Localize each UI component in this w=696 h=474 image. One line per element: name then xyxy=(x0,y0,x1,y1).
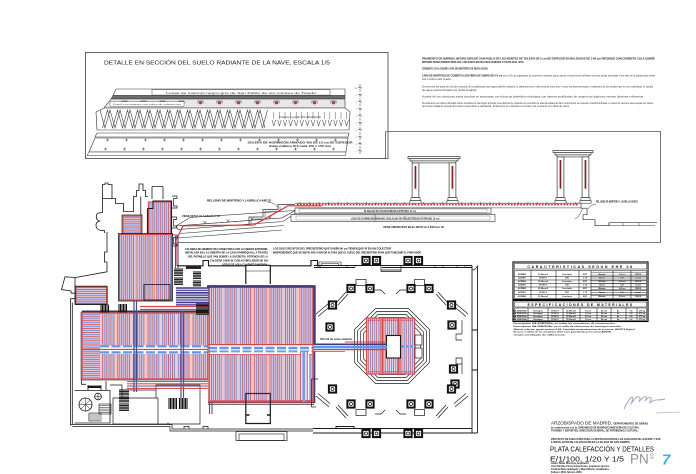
svg-text:Blanda: Blanda xyxy=(599,274,607,276)
svg-text:CAPA DE MORTERO DE CEMENTO CON: CAPA DE MORTERO DE CEMENTO CON FIBRA DE … xyxy=(422,74,655,78)
svg-text:3-4 cm: 3-4 cm xyxy=(619,273,626,276)
svg-text:Descripcion HA-25/B/20/IIa: en: Descripcion HA-25/B/20/IIa: en el radio … xyxy=(514,325,623,328)
svg-text:Febrero 2019, febrero 2020.: Febrero 2019, febrero 2020. xyxy=(551,471,582,474)
svg-text:estad: estad xyxy=(635,276,641,279)
svg-text:TURISMO Y DEPORTES, DIRECCIÓN: TURISMO Y DEPORTES, DIRECCIÓN GENERAL DE… xyxy=(551,430,639,433)
svg-text:tendra certificado de adherenc: tendra certificado de adherencia. xyxy=(514,334,567,337)
svg-text:A partir de los colectores est: A partir de los colectores estos circuit… xyxy=(422,96,644,99)
svg-text:Hormigon: Hormigon xyxy=(533,319,543,321)
svg-text:25 N/mm2: 25 N/mm2 xyxy=(538,296,549,298)
svg-text:1.5 cm: 1.5 cm xyxy=(585,313,591,315)
svg-text:25 N/mm2: 25 N/mm2 xyxy=(566,313,576,315)
svg-text:ESPECIFICACIONES DE MATERIALES: ESPECIFICACIONES DE MATERIALES xyxy=(528,303,634,307)
svg-text:Losas de mármol negro-gris de: Losas de mármol negro-gris de San Pablo … xyxy=(166,92,317,95)
svg-text:Minimo relacion agua/cemento 0: Minimo relacion agua/cemento 0,60. Canti… xyxy=(514,328,637,331)
svg-text:25 N/mm2: 25 N/mm2 xyxy=(538,288,549,290)
svg-text:275 kg: 275 kg xyxy=(639,319,646,321)
svg-text:CEM II: CEM II xyxy=(635,274,642,276)
svg-text:HA-25/B/20/IIa: HA-25/B/20/IIa xyxy=(513,309,527,312)
svg-text:RELLENO DE MORTERO Y LADRILLO: RELLENO DE MORTERO Y LADRILLO HUECO xyxy=(596,201,638,204)
svg-text:B 500 S: B 500 S xyxy=(539,292,547,294)
svg-text:3-4 cm: 3-4 cm xyxy=(619,295,626,298)
svg-text:Hormigon: Hormigon xyxy=(533,313,543,315)
svg-text:del suelo radiante ocupando to: del suelo radiante ocupando toda la supe… xyxy=(422,105,570,108)
svg-text:HA-25/B/20/IIa: HA-25/B/20/IIa xyxy=(513,315,527,318)
svg-text:Norm: Norm xyxy=(599,276,605,279)
svg-text:Poliestireno extruido XPS 1200: Poliestireno extruido XPS 1200x600x100 xyxy=(279,116,321,119)
svg-text:20 mm: 20 mm xyxy=(601,319,608,321)
svg-text:doble mallazo Ø 8 cada 150 x 1: doble mallazo Ø 8 cada 150 x 150 mm xyxy=(269,145,331,148)
svg-text:ACERO: ACERO xyxy=(518,283,526,286)
svg-text:25 N/mm2: 25 N/mm2 xyxy=(566,316,576,318)
svg-text:LOSA DE HORMIGÓN ARMADO CON AL: LOSA DE HORMIGÓN ARMADO CON ALMA DE POLI… xyxy=(351,217,440,220)
svg-text:25 N/mm2: 25 N/mm2 xyxy=(566,319,576,321)
svg-text:Cons/plas: Cons/plas xyxy=(562,296,573,298)
svg-text:LOS DOS CIRCUITOS DEL PRESBITE: LOS DOS CIRCUITOS DEL PRESBITERIO QUE SU… xyxy=(273,246,391,250)
svg-text:1.5 cm: 1.5 cm xyxy=(585,319,591,321)
svg-text:25 N/mm2: 25 N/mm2 xyxy=(538,274,549,276)
svg-text:los cortes del suelo.: los cortes del suelo. xyxy=(422,78,452,81)
svg-text:CEM II: CEM II xyxy=(635,281,642,283)
svg-text:HORMIG: HORMIG xyxy=(518,288,527,290)
svg-text:El acero a utilizar de las arm: El acero a utilizar de las armaduras deb… xyxy=(514,331,612,334)
svg-text:1.5 cm: 1.5 cm xyxy=(585,310,591,312)
svg-text:Hormigon: Hormigon xyxy=(533,316,543,318)
svg-text:HA-25/B/20/IIa: HA-25/B/20/IIa xyxy=(513,318,527,321)
svg-text:B 500 S: B 500 S xyxy=(539,284,547,286)
svg-text:estad: estad xyxy=(635,291,641,294)
svg-text:3-4 cm: 3-4 cm xyxy=(619,280,626,283)
svg-text:20 mm: 20 mm xyxy=(601,310,608,312)
svg-text:Norm: Norm xyxy=(599,291,605,294)
svg-text:1.5 cm: 1.5 cm xyxy=(585,316,591,318)
svg-text:Ctrl: Ctrl xyxy=(620,276,624,279)
svg-text:Hormigon: Hormigon xyxy=(533,310,543,312)
svg-text:Norm: Norm xyxy=(599,283,605,286)
svg-text:Cons/plas: Cons/plas xyxy=(562,281,573,283)
svg-text:20 mm: 20 mm xyxy=(601,316,608,318)
svg-text:estad: estad xyxy=(635,283,641,286)
svg-text:275 kg: 275 kg xyxy=(639,313,646,315)
svg-text:B 500 S: B 500 S xyxy=(551,313,559,315)
svg-text:Blanda: Blanda xyxy=(599,281,607,283)
svg-text:VIENE DETALLE A ESCALA 1/5: VIENE DETALLE A ESCALA 1/5 xyxy=(182,215,221,218)
svg-text:CEM II: CEM II xyxy=(635,288,642,290)
svg-text:CEM II: CEM II xyxy=(635,296,642,298)
svg-text:Blanda: Blanda xyxy=(599,288,607,290)
svg-text:PN: PN xyxy=(630,452,649,467)
svg-text:de agua estara limitado por di: de agua estara limitado por dicha longit… xyxy=(422,89,477,92)
svg-text:CARACTERISTICAS SEGUN EHE 08: CARACTERISTICAS SEGUN EHE 08 xyxy=(527,265,633,269)
svg-text:VIENE ARMADURAS EN EL DETALLE: VIENE ARMADURAS EN EL DETALLE A ESCALA 1… xyxy=(383,225,444,229)
svg-text:3-4 cm: 3-4 cm xyxy=(619,287,626,290)
svg-text:20 mm: 20 mm xyxy=(601,313,608,315)
svg-text:Descripcion HA-25/B/20/IIa: en: Descripcion HA-25/B/20/IIa: en todas las… xyxy=(514,322,617,325)
svg-text:MORTERO PERFECTAMENTE NIVELADO: MORTERO PERFECTAMENTE NIVELADO, CON JUNT… xyxy=(422,60,524,64)
svg-text:PLANCHA DE POLIESTIRENO EXTRUI: PLANCHA DE POLIESTIRENO EXTRUIDO 10 cm xyxy=(364,210,416,213)
svg-text:Ctrl: Ctrl xyxy=(620,283,624,286)
svg-text:ACERO: ACERO xyxy=(518,276,526,279)
svg-text:RELLENO DE MORTERO Y LADRILLO: RELLENO DE MORTERO Y LADRILLO HUECO xyxy=(207,200,271,203)
svg-text:B 500 S: B 500 S xyxy=(551,319,559,321)
svg-text:275 kg: 275 kg xyxy=(639,316,646,318)
svg-text:25 N/mm2: 25 N/mm2 xyxy=(538,281,549,283)
svg-text:7: 7 xyxy=(662,452,671,469)
svg-text:25 N/mm2: 25 N/mm2 xyxy=(566,310,576,312)
svg-text:275 kg: 275 kg xyxy=(639,310,646,312)
svg-text:DETALLE EN SECCIÓN DEL SUELO R: DETALLE EN SECCIÓN DEL SUELO RADIANTE DE… xyxy=(104,60,330,67)
svg-text:HA-25/B/20/IIa: HA-25/B/20/IIa xyxy=(513,312,527,315)
svg-text:HORMIG: HORMIG xyxy=(518,281,527,283)
svg-text:ACERO: ACERO xyxy=(518,291,526,294)
svg-text:400 m2 de suelo radiante: 400 m2 de suelo radiante xyxy=(320,337,352,341)
svg-text:Ctrl: Ctrl xyxy=(620,291,624,294)
svg-text:Panel con tetones con tubos de: Panel con tetones con tubos de calefacci… xyxy=(113,103,182,106)
svg-text:HORMIG: HORMIG xyxy=(518,296,527,298)
svg-text:B 500 S: B 500 S xyxy=(539,277,547,279)
svg-text:o: o xyxy=(650,452,654,459)
svg-text:Blanda: Blanda xyxy=(599,296,607,298)
svg-text:Cons/plas: Cons/plas xyxy=(562,274,573,276)
svg-text:HORMIG: HORMIG xyxy=(518,274,527,276)
svg-text:B 500 S: B 500 S xyxy=(551,316,559,318)
svg-text:B 500 S: B 500 S xyxy=(551,310,559,312)
svg-text:Cons/plas: Cons/plas xyxy=(562,288,573,290)
